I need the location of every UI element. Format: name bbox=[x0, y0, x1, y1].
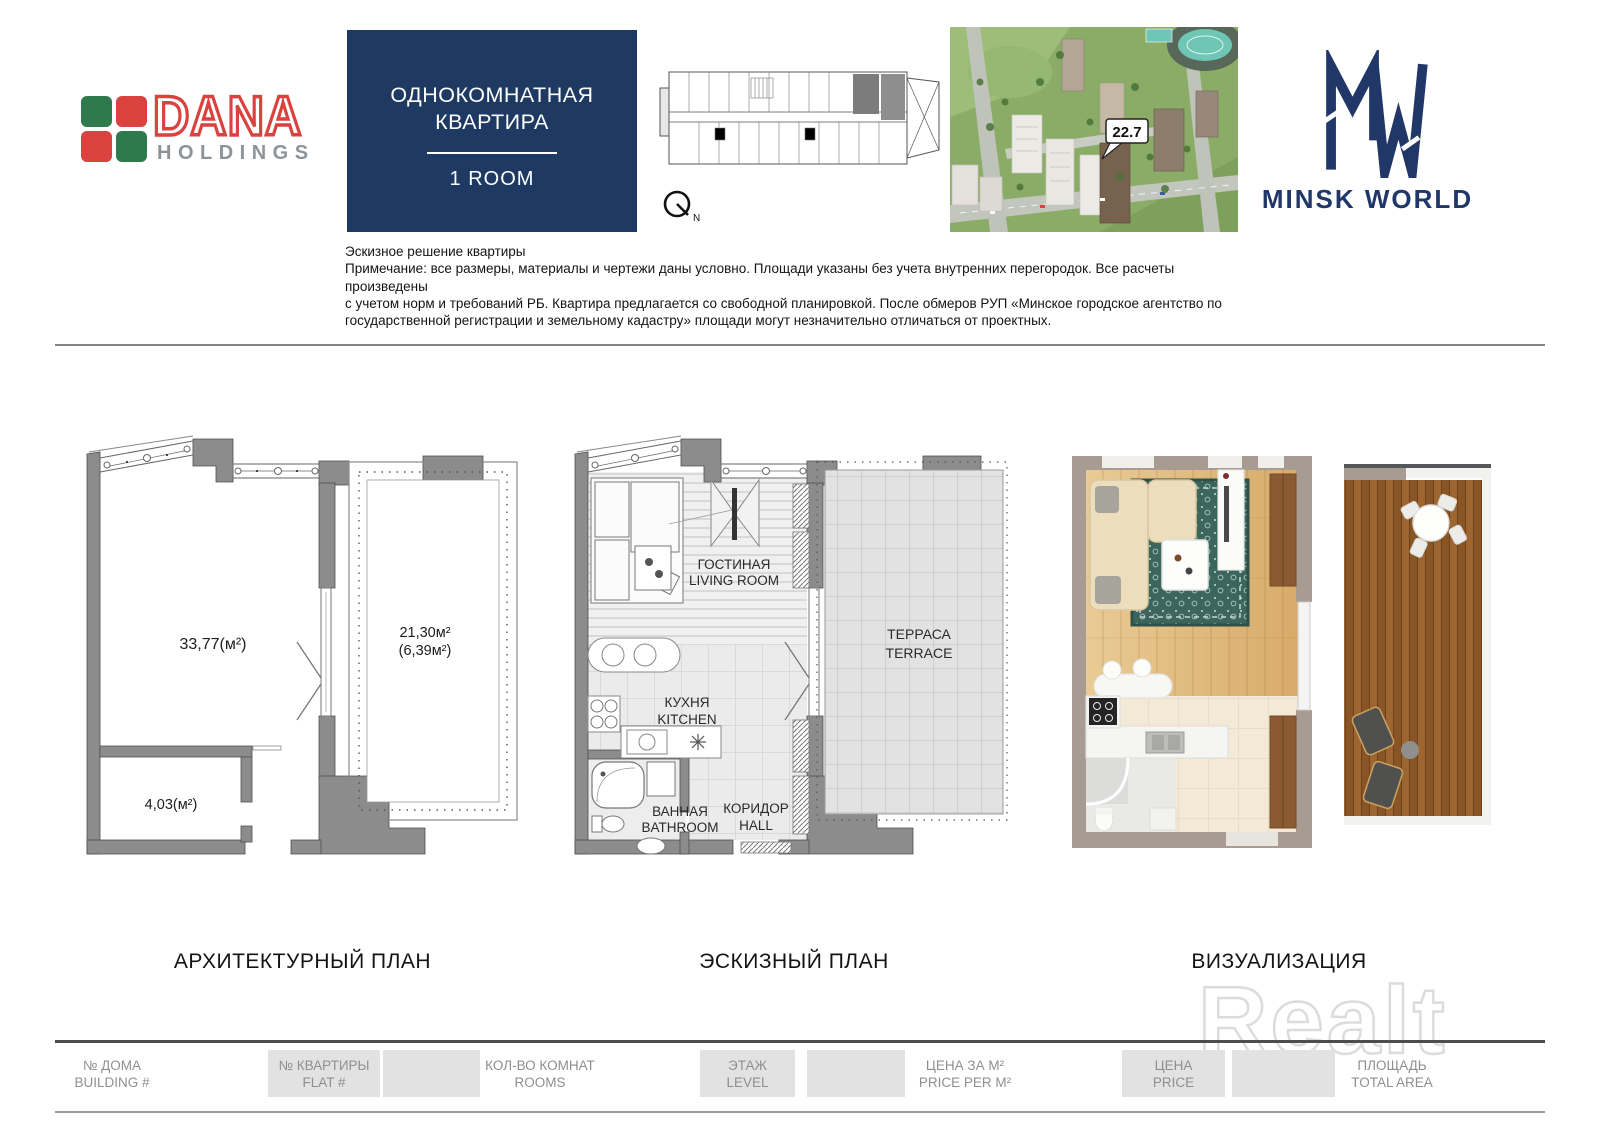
footer-flat-en: FLAT # bbox=[268, 1074, 380, 1091]
caption-sketch-plan: ЭСКИЗНЫЙ ПЛАН bbox=[573, 950, 1015, 978]
dana-square-red-bl bbox=[81, 131, 112, 162]
minsk-world-wordmark: MINSK WORLD bbox=[1240, 184, 1495, 215]
dana-square-red-tr bbox=[116, 96, 147, 127]
viz-tv-console bbox=[1218, 470, 1244, 570]
caption-architectural-plan: АРХИТЕКТУРНЫЙ ПЛАН bbox=[85, 950, 520, 978]
arch-hall-area-label: 4,03(м²) bbox=[145, 797, 198, 813]
bathroom-label-en: BATHROOM bbox=[642, 820, 719, 835]
minsk-world-monogram-icon bbox=[1292, 50, 1458, 178]
footer-area-ru: ПЛОЩАДЬ bbox=[1312, 1057, 1472, 1074]
disclaimer-notes: Эскизное решение квартиры Примечание: вс… bbox=[345, 243, 1240, 329]
footer-area-en: TOTAL AREA bbox=[1312, 1074, 1472, 1091]
footer-area-label: ПЛОЩАДЬ TOTAL AREA bbox=[1312, 1050, 1472, 1097]
arch-terrace-outline bbox=[349, 462, 517, 820]
footer-level-ru: ЭТАЖ bbox=[700, 1057, 795, 1074]
apartment-type-en: 1 ROOM bbox=[347, 168, 637, 191]
arch-terrace-reduced-label: (6,39м²) bbox=[399, 643, 452, 659]
footer-top-rule bbox=[55, 1040, 1545, 1043]
kitchen-counter-icon bbox=[621, 726, 721, 758]
footer-rooms-en: ROOMS bbox=[460, 1074, 620, 1091]
compass-north-label: N bbox=[693, 213, 700, 224]
dana-square-green-tl bbox=[81, 96, 112, 127]
footer-price-per-m2-en: PRICE PER M² bbox=[885, 1074, 1045, 1091]
arch-terrace-area-label: 21,30м² bbox=[399, 625, 450, 641]
hall-label-en: HALL bbox=[739, 818, 773, 833]
dana-logo-squares-icon bbox=[81, 96, 147, 162]
footer-price-en: PRICE bbox=[1122, 1074, 1225, 1091]
living-label-ru: ГОСТИНАЯ bbox=[698, 557, 771, 572]
footer-rooms-label: КОЛ-ВО КОМНАТ ROOMS bbox=[460, 1050, 620, 1097]
north-compass-icon: N bbox=[665, 192, 700, 224]
notes-line4: государственной регистрации и земельному… bbox=[345, 312, 1240, 329]
terrace-label-ru: ТЕРРАСА bbox=[887, 626, 951, 642]
bath-cabinet-icon bbox=[647, 762, 675, 796]
notes-line3: с учетом норм и требований РБ. Квартира … bbox=[345, 295, 1240, 312]
fridge-snowflake-icon bbox=[690, 734, 706, 750]
aerial-site-photo: 22.7 bbox=[950, 27, 1238, 232]
footer-price-ru: ЦЕНА bbox=[1122, 1057, 1225, 1074]
building-floor-schematic: N bbox=[655, 52, 945, 237]
dana-holdings-logo: DANA HOLDINGS bbox=[75, 92, 340, 180]
stove-icon bbox=[588, 696, 620, 732]
footer-building-label: № ДОМА BUILDING # bbox=[32, 1050, 192, 1097]
bathroom-label-ru: ВАННАЯ bbox=[652, 804, 708, 819]
footer-level-label: ЭТАЖ LEVEL bbox=[700, 1050, 795, 1097]
dana-logo-holdings: HOLDINGS bbox=[157, 142, 315, 165]
arch-main-area-label: 33,77(м²) bbox=[179, 636, 246, 653]
caption-visualization: ВИЗУАЛИЗАЦИЯ bbox=[1058, 950, 1500, 978]
banner-divider bbox=[427, 152, 557, 154]
dana-logo-wordmark: DANA bbox=[153, 83, 302, 148]
apartment-type-banner: ОДНОКОМНАТНАЯ КВАРТИРА 1 ROOM bbox=[347, 30, 637, 232]
footer-price-label: ЦЕНА PRICE bbox=[1122, 1050, 1225, 1097]
highlighted-flat bbox=[853, 74, 879, 114]
sketch-plan: ГОСТИНАЯ LIVING ROOM ТЕРРАСА TERRACE КУХ… bbox=[573, 428, 1015, 870]
living-label-en: LIVING ROOM bbox=[689, 573, 779, 588]
apartment-type-ru-line1: ОДНОКОМНАТНАЯ bbox=[347, 82, 637, 109]
footer-flat-ru: № КВАРТИРЫ bbox=[268, 1057, 380, 1074]
highlighted-flat-terrace bbox=[881, 74, 905, 120]
apartment-type-ru-line2: КВАРТИРА bbox=[347, 109, 637, 136]
notes-line2: Примечание: все размеры, материалы и чер… bbox=[345, 260, 1240, 295]
visualization-render bbox=[1058, 428, 1500, 870]
bathtub-icon bbox=[592, 762, 644, 808]
kitchen-island-icon bbox=[588, 638, 680, 672]
footer-building-en: BUILDING # bbox=[32, 1074, 192, 1091]
footer-rooms-ru: КОЛ-ВО КОМНАТ bbox=[460, 1057, 620, 1074]
arch-terrace-door bbox=[297, 588, 331, 720]
footer-flat-label: № КВАРТИРЫ FLAT # bbox=[268, 1050, 380, 1097]
footer-building-ru: № ДОМА bbox=[32, 1057, 192, 1074]
toilet-icon bbox=[592, 816, 624, 832]
architectural-plan: 33,77(м²) 21,30м² (6,39м²) 4,03(м²) bbox=[85, 428, 520, 870]
footer-price-per-m2-label: ЦЕНА ЗА М² PRICE PER M² bbox=[885, 1050, 1045, 1097]
header-divider-line bbox=[55, 344, 1545, 346]
sink-icon bbox=[637, 838, 665, 854]
hall-label-ru: КОРИДОР bbox=[723, 801, 789, 816]
coffee-table-icon bbox=[635, 546, 671, 590]
footer-bottom-rule bbox=[55, 1111, 1545, 1113]
terrace-label-en: TERRACE bbox=[886, 645, 953, 661]
height-badge-value: 22.7 bbox=[1112, 124, 1141, 141]
viz-coffee-table bbox=[1162, 540, 1208, 590]
notes-line1: Эскизное решение квартиры bbox=[345, 243, 1240, 260]
footer-price-per-m2-ru: ЦЕНА ЗА М² bbox=[885, 1057, 1045, 1074]
footer-level-en: LEVEL bbox=[700, 1074, 795, 1091]
kitchen-label-en: KITCHEN bbox=[657, 712, 716, 727]
dana-square-green-br bbox=[116, 131, 147, 162]
kitchen-label-ru: КУХНЯ bbox=[664, 695, 709, 710]
arch-shelf bbox=[253, 746, 281, 750]
